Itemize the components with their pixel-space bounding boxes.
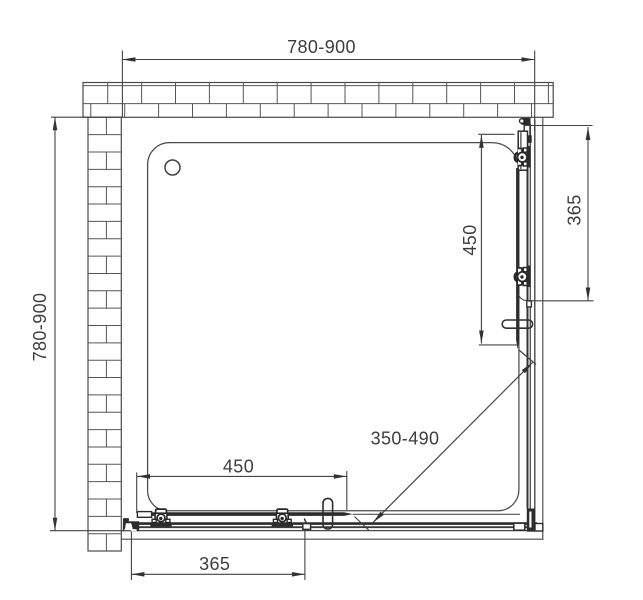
svg-text:365: 365 <box>199 554 230 574</box>
svg-text:780-900: 780-900 <box>30 293 50 362</box>
svg-text:365: 365 <box>565 194 585 225</box>
svg-text:780-900: 780-900 <box>287 37 356 57</box>
svg-text:450: 450 <box>460 224 480 255</box>
svg-text:450: 450 <box>223 457 254 477</box>
svg-text:350-490: 350-490 <box>371 429 440 449</box>
